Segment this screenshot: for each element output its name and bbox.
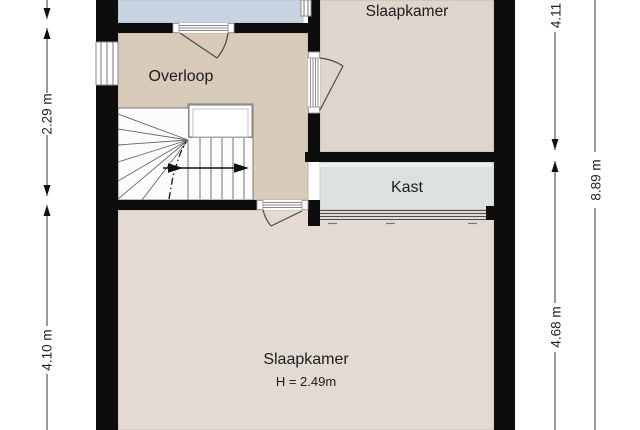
stair-railing: [189, 105, 252, 137]
label-bedroom-top: Slaapkamer: [366, 3, 449, 20]
wall-above-closet: [305, 152, 494, 162]
window-top-middle: [301, 0, 311, 16]
room-bedroom-top: [320, 0, 494, 152]
dim-right-inner-upper: 4.11 m: [549, 0, 564, 28]
label-closet: Kast: [391, 179, 424, 196]
dim-right-outer: 8.89 m: [589, 159, 604, 200]
floorplan-drawing: Slaapkamer Overloop Kast Slaapkamer H = …: [0, 0, 640, 430]
wall-below-landing: [96, 200, 262, 210]
wall-right-exterior: [494, 0, 515, 430]
label-bedroom-main-height: H = 2.49m: [276, 374, 336, 389]
dim-right-inner-lower: 4.68 m: [549, 306, 564, 347]
label-bedroom-main: Slaapkamer: [263, 351, 349, 368]
wall-stub-closet-right: [486, 206, 494, 220]
dim-left-upper: 2.29 m: [40, 93, 55, 134]
closet-highlight: [320, 163, 492, 167]
room-top-blue: [118, 0, 303, 23]
staircase: [118, 104, 253, 200]
wall-stub-closet-left: [308, 200, 320, 226]
dim-left-lower: 4.10 m: [40, 329, 55, 370]
window-left-wall: [96, 42, 118, 85]
label-landing: Overloop: [149, 68, 214, 85]
floorplan-canvas: Slaapkamer Overloop Kast Slaapkamer H = …: [0, 0, 640, 430]
room-bedroom-main: [118, 210, 494, 430]
